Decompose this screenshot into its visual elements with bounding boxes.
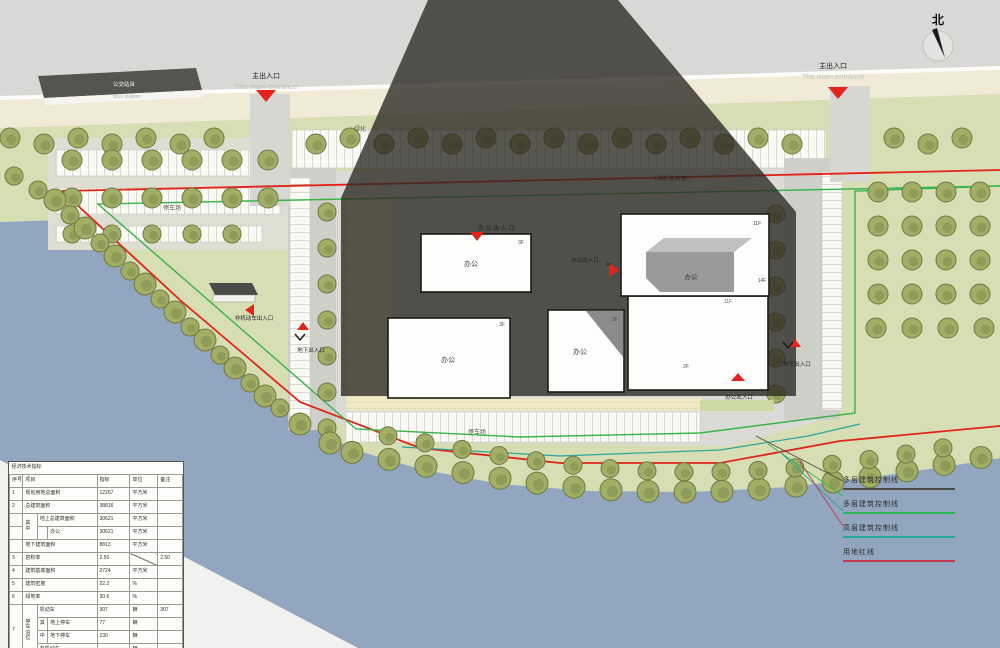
main-entrance-en-east: The main entrance bbox=[802, 72, 865, 81]
cell: 1 bbox=[10, 488, 23, 501]
tree-shade bbox=[229, 157, 239, 167]
tree-shade bbox=[755, 485, 766, 496]
tree-shade bbox=[211, 135, 221, 145]
cell: 办公 bbox=[48, 527, 97, 540]
tree-shade bbox=[909, 257, 919, 267]
floor-sw: 3F bbox=[499, 322, 505, 328]
tree-shade bbox=[149, 231, 158, 240]
tree-shade bbox=[570, 462, 579, 471]
cell: 其 bbox=[37, 618, 47, 631]
tree-shade bbox=[109, 141, 119, 151]
building-office-podium bbox=[628, 296, 768, 390]
cell: 4 bbox=[10, 566, 23, 579]
cell: 2 bbox=[10, 501, 23, 514]
cell: 平方米 bbox=[130, 566, 158, 579]
cell: 2.50 bbox=[158, 553, 183, 566]
cell: 绿地率 bbox=[23, 592, 97, 605]
tree-shade bbox=[111, 252, 122, 263]
cell bbox=[158, 540, 183, 553]
tower-roof-top bbox=[646, 238, 752, 252]
tree-shade bbox=[261, 392, 272, 403]
tree-shade bbox=[11, 173, 20, 182]
cell: 平方米 bbox=[130, 540, 158, 553]
tree-shade bbox=[385, 433, 394, 442]
tree-shade bbox=[943, 291, 953, 301]
tree-shade bbox=[909, 223, 919, 233]
cell: 307 bbox=[158, 605, 183, 618]
tree-shade bbox=[977, 257, 987, 267]
cell: 辆 bbox=[130, 631, 158, 644]
cell bbox=[37, 527, 47, 540]
tree-shade bbox=[792, 482, 803, 493]
tree-shade bbox=[644, 468, 653, 477]
tree-shade bbox=[607, 466, 616, 475]
tree-shade bbox=[875, 257, 885, 267]
cell bbox=[158, 514, 183, 527]
tree-shade bbox=[945, 325, 955, 335]
tree-shade bbox=[981, 325, 991, 335]
tree-shade bbox=[977, 189, 987, 199]
legend-label: 多层建筑控制线 bbox=[843, 501, 899, 508]
tree-shade bbox=[189, 195, 199, 205]
tree-shade bbox=[324, 317, 333, 326]
tree-shade bbox=[177, 141, 187, 151]
cell: 建筑密度 bbox=[23, 579, 97, 592]
cell: 38816 bbox=[97, 501, 130, 514]
cell bbox=[158, 592, 183, 605]
tree-shade bbox=[41, 141, 51, 151]
cell: 平方米 bbox=[130, 501, 158, 514]
cell: 平方米 bbox=[130, 488, 158, 501]
office-label-sw: 办公 bbox=[441, 355, 455, 364]
cell bbox=[158, 566, 183, 579]
cell bbox=[10, 514, 23, 527]
cell: 规划用地总面积 bbox=[23, 488, 97, 501]
tree-shade bbox=[459, 446, 468, 455]
cell: 辆 bbox=[130, 644, 158, 648]
tree-shade bbox=[265, 157, 275, 167]
tree-shade bbox=[324, 353, 333, 362]
cell: 辆 bbox=[130, 605, 158, 618]
tree-shade bbox=[940, 445, 949, 454]
cell bbox=[10, 540, 23, 553]
legend-item-highrise: 高层建筑控制线 bbox=[843, 517, 955, 538]
main-entrance-cn-west: 主出入口 bbox=[252, 71, 280, 80]
access-road-east bbox=[830, 86, 870, 182]
tree-shade bbox=[229, 195, 239, 205]
cell bbox=[158, 527, 183, 540]
cell: 停车泊位 bbox=[23, 605, 37, 648]
cell bbox=[130, 553, 158, 566]
cell bbox=[97, 644, 130, 648]
tree-shade bbox=[866, 457, 875, 466]
tree-shade bbox=[681, 469, 690, 478]
cell: 77 bbox=[97, 618, 130, 631]
floor-tower-11f-b: 11F bbox=[724, 299, 732, 305]
tree-shade bbox=[496, 452, 505, 461]
tree-shade bbox=[109, 157, 119, 167]
tree-shade bbox=[247, 380, 256, 389]
underground-entrance-label-e: 地下出入口 bbox=[783, 360, 811, 368]
office-entrance-label-n: 办公出入口 bbox=[478, 224, 516, 232]
tree-shade bbox=[385, 455, 396, 466]
greenery-label: 绿化 bbox=[354, 125, 366, 133]
cell: 3 bbox=[10, 553, 23, 566]
tree-shade bbox=[718, 469, 727, 478]
col-header: 序号 bbox=[10, 475, 23, 488]
cell bbox=[10, 527, 23, 540]
tree-shade bbox=[903, 451, 912, 460]
tree-shade bbox=[265, 195, 275, 205]
cell: 30621 bbox=[97, 527, 130, 540]
legend-item-multi-2: 多层建筑控制线 bbox=[843, 493, 955, 514]
tree-shade bbox=[143, 135, 153, 145]
tree-shade bbox=[7, 135, 17, 145]
floor-tower-14f: 14F bbox=[758, 278, 767, 284]
legend-item-redline: 用地红线 bbox=[843, 541, 955, 562]
bus-station-en: Bus station bbox=[113, 94, 140, 100]
col-header: 指标 bbox=[97, 475, 130, 488]
cell: 机动车 bbox=[37, 605, 97, 618]
tree-shade bbox=[607, 486, 618, 497]
tree-shade bbox=[533, 479, 544, 490]
tree-shade bbox=[533, 458, 542, 467]
cell bbox=[158, 488, 183, 501]
tree-shade bbox=[149, 195, 159, 205]
tree-shade bbox=[149, 157, 159, 167]
cell: 总建筑面积 bbox=[23, 501, 97, 514]
tree-shade bbox=[718, 487, 729, 498]
tree-shade bbox=[313, 141, 323, 151]
cell: 5 bbox=[10, 579, 23, 592]
parking-label-s: 停车场 bbox=[468, 428, 486, 436]
tree-shade bbox=[324, 245, 333, 254]
tree-shade bbox=[959, 135, 969, 145]
tree-shade bbox=[977, 223, 987, 233]
tree-shade bbox=[324, 209, 333, 218]
tree-shade bbox=[909, 325, 919, 335]
cell: 30.6 bbox=[97, 592, 130, 605]
tree-shade bbox=[231, 364, 242, 375]
tree-shade bbox=[109, 231, 118, 240]
cell: 2.50 bbox=[97, 553, 130, 566]
tree-shade bbox=[891, 135, 901, 145]
legend-label: 高层建筑控制线 bbox=[843, 525, 899, 532]
cell: 平方米 bbox=[130, 514, 158, 527]
tree-shade bbox=[977, 291, 987, 301]
tree-shade bbox=[875, 189, 885, 199]
tree-shade bbox=[189, 231, 198, 240]
parking-label-nw: 停车场 bbox=[163, 204, 181, 212]
office-label-mid: 办公 bbox=[573, 347, 587, 356]
cell: 30621 bbox=[97, 514, 130, 527]
office-entrance-label-e: 办公出入口 bbox=[571, 256, 599, 264]
floor-mid: 3F bbox=[612, 317, 618, 323]
col-header: 单位 bbox=[130, 475, 158, 488]
legend-label: 多层建筑控制线 bbox=[843, 477, 899, 484]
cell bbox=[158, 631, 183, 644]
tree-shade bbox=[943, 257, 953, 267]
cell bbox=[158, 618, 183, 631]
fire-lane-label: (消防登高面) bbox=[654, 175, 689, 182]
tree-shade bbox=[69, 195, 79, 205]
cell bbox=[158, 644, 183, 648]
tree-shade bbox=[755, 135, 765, 145]
tree-shade bbox=[201, 336, 212, 347]
parking-stalls-nw-1 bbox=[56, 150, 280, 176]
col-header: 项目 bbox=[23, 475, 97, 488]
tree-shade bbox=[644, 488, 655, 499]
cell: % bbox=[130, 592, 158, 605]
bike-shed-roof bbox=[209, 283, 258, 295]
tree-shade bbox=[217, 352, 226, 361]
nonmotor-entrance-label: 非机动车出入口 bbox=[235, 314, 274, 322]
tree-shade bbox=[229, 231, 238, 240]
tree-shade bbox=[977, 454, 988, 465]
road-stalls-east bbox=[822, 172, 842, 410]
main-entrance-en-west: The main entrance bbox=[235, 82, 298, 91]
office-entrance-label-s: 办公出入口 bbox=[725, 393, 753, 401]
site-plan: 主出入口 The main entrance 主出入口 The main ent… bbox=[0, 0, 1000, 648]
cell: 7 bbox=[10, 605, 23, 648]
tree-shade bbox=[789, 141, 799, 151]
tech-indicator-table: 经济技术指标 序号 项目 指标 单位 备注 1 规划用地总面积 12267 平方… bbox=[8, 461, 184, 648]
tree-shade bbox=[875, 223, 885, 233]
entrance-pad bbox=[700, 400, 774, 411]
cell: 地上停车 bbox=[48, 618, 97, 631]
tree-shade bbox=[909, 189, 919, 199]
tower-roof-front bbox=[646, 252, 734, 292]
cell: 平方米 bbox=[130, 527, 158, 540]
tree-shade bbox=[81, 224, 92, 235]
table-title: 经济技术指标 bbox=[10, 462, 183, 475]
legend-label: 用地红线 bbox=[843, 549, 875, 556]
floor-nw: 3F bbox=[518, 240, 524, 246]
cell: 8813 bbox=[97, 540, 130, 553]
cell: % bbox=[130, 579, 158, 592]
cell: 地下建筑面积 bbox=[23, 540, 97, 553]
tree-shade bbox=[324, 389, 333, 398]
office-label-nw: 办公 bbox=[464, 259, 478, 268]
office-label-tower: 办公 bbox=[685, 272, 699, 281]
cell: 非机动车 bbox=[37, 644, 97, 648]
floor-podium-2f: 2F bbox=[683, 364, 689, 370]
cell: 中 bbox=[37, 631, 47, 644]
tree-shade bbox=[187, 324, 196, 333]
legend: 多层建筑控制线 多层建筑控制线 高层建筑控制线 用地红线 bbox=[843, 469, 955, 565]
tree-shade bbox=[97, 240, 106, 249]
tree-shade bbox=[189, 157, 199, 167]
tree-shade bbox=[875, 291, 885, 301]
tree-shade bbox=[422, 462, 433, 473]
cell: 建筑基底面积 bbox=[23, 566, 97, 579]
cell: 12267 bbox=[97, 488, 130, 501]
tree-shade bbox=[925, 141, 935, 151]
tree-shade bbox=[755, 467, 764, 476]
cell bbox=[158, 501, 183, 514]
tree-shade bbox=[829, 461, 838, 470]
bus-station-cn: 公交站台 bbox=[113, 80, 136, 88]
cell: 22.2 bbox=[97, 579, 130, 592]
cell: 307 bbox=[97, 605, 130, 618]
tree-shade bbox=[35, 187, 44, 196]
tree-shade bbox=[69, 157, 79, 167]
tree-shade bbox=[324, 281, 333, 290]
cell: 地下停车 bbox=[48, 631, 97, 644]
tree-shade bbox=[570, 483, 581, 494]
tree-shade bbox=[157, 296, 166, 305]
cell bbox=[158, 579, 183, 592]
tree-shade bbox=[51, 196, 62, 207]
underground-entrance-label-w: 地下出入口 bbox=[297, 346, 325, 354]
cell: 2724 bbox=[97, 566, 130, 579]
office-entrance-floor-e: 3F bbox=[606, 262, 612, 267]
tree-shade bbox=[326, 439, 337, 450]
tree-shade bbox=[75, 135, 85, 145]
tree-shade bbox=[171, 308, 182, 319]
tree-shade bbox=[459, 469, 470, 480]
cell: 辆 bbox=[130, 618, 158, 631]
tree-shade bbox=[943, 189, 953, 199]
tree-shade bbox=[296, 420, 307, 431]
tree-shade bbox=[496, 474, 507, 485]
tree-shade bbox=[277, 405, 286, 414]
cell: 其中 bbox=[23, 514, 37, 540]
tree-shade bbox=[347, 135, 357, 145]
tree-shade bbox=[127, 268, 136, 277]
cell: 230 bbox=[97, 631, 130, 644]
tree-shade bbox=[681, 488, 692, 499]
walkway-band-bottom bbox=[350, 398, 702, 411]
tree-shade bbox=[67, 212, 76, 221]
cell: 容积率 bbox=[23, 553, 97, 566]
tree-shade bbox=[909, 291, 919, 301]
bike-shed-front bbox=[213, 295, 255, 302]
col-header: 备注 bbox=[158, 475, 183, 488]
tree-shade bbox=[943, 223, 953, 233]
tree-shade bbox=[141, 280, 152, 291]
cell: 6 bbox=[10, 592, 23, 605]
tree-shade bbox=[348, 448, 359, 459]
main-entrance-cn-east: 主出入口 bbox=[819, 61, 847, 70]
north-label: 北 bbox=[932, 12, 944, 27]
tree-shade bbox=[109, 195, 119, 205]
tree-shade bbox=[873, 325, 883, 335]
cell: 地上总建筑面积 bbox=[37, 514, 97, 527]
legend-item-multi-1: 多层建筑控制线 bbox=[843, 469, 955, 490]
floor-tower-11f: 11F bbox=[753, 221, 761, 227]
tree-shade bbox=[422, 440, 431, 449]
